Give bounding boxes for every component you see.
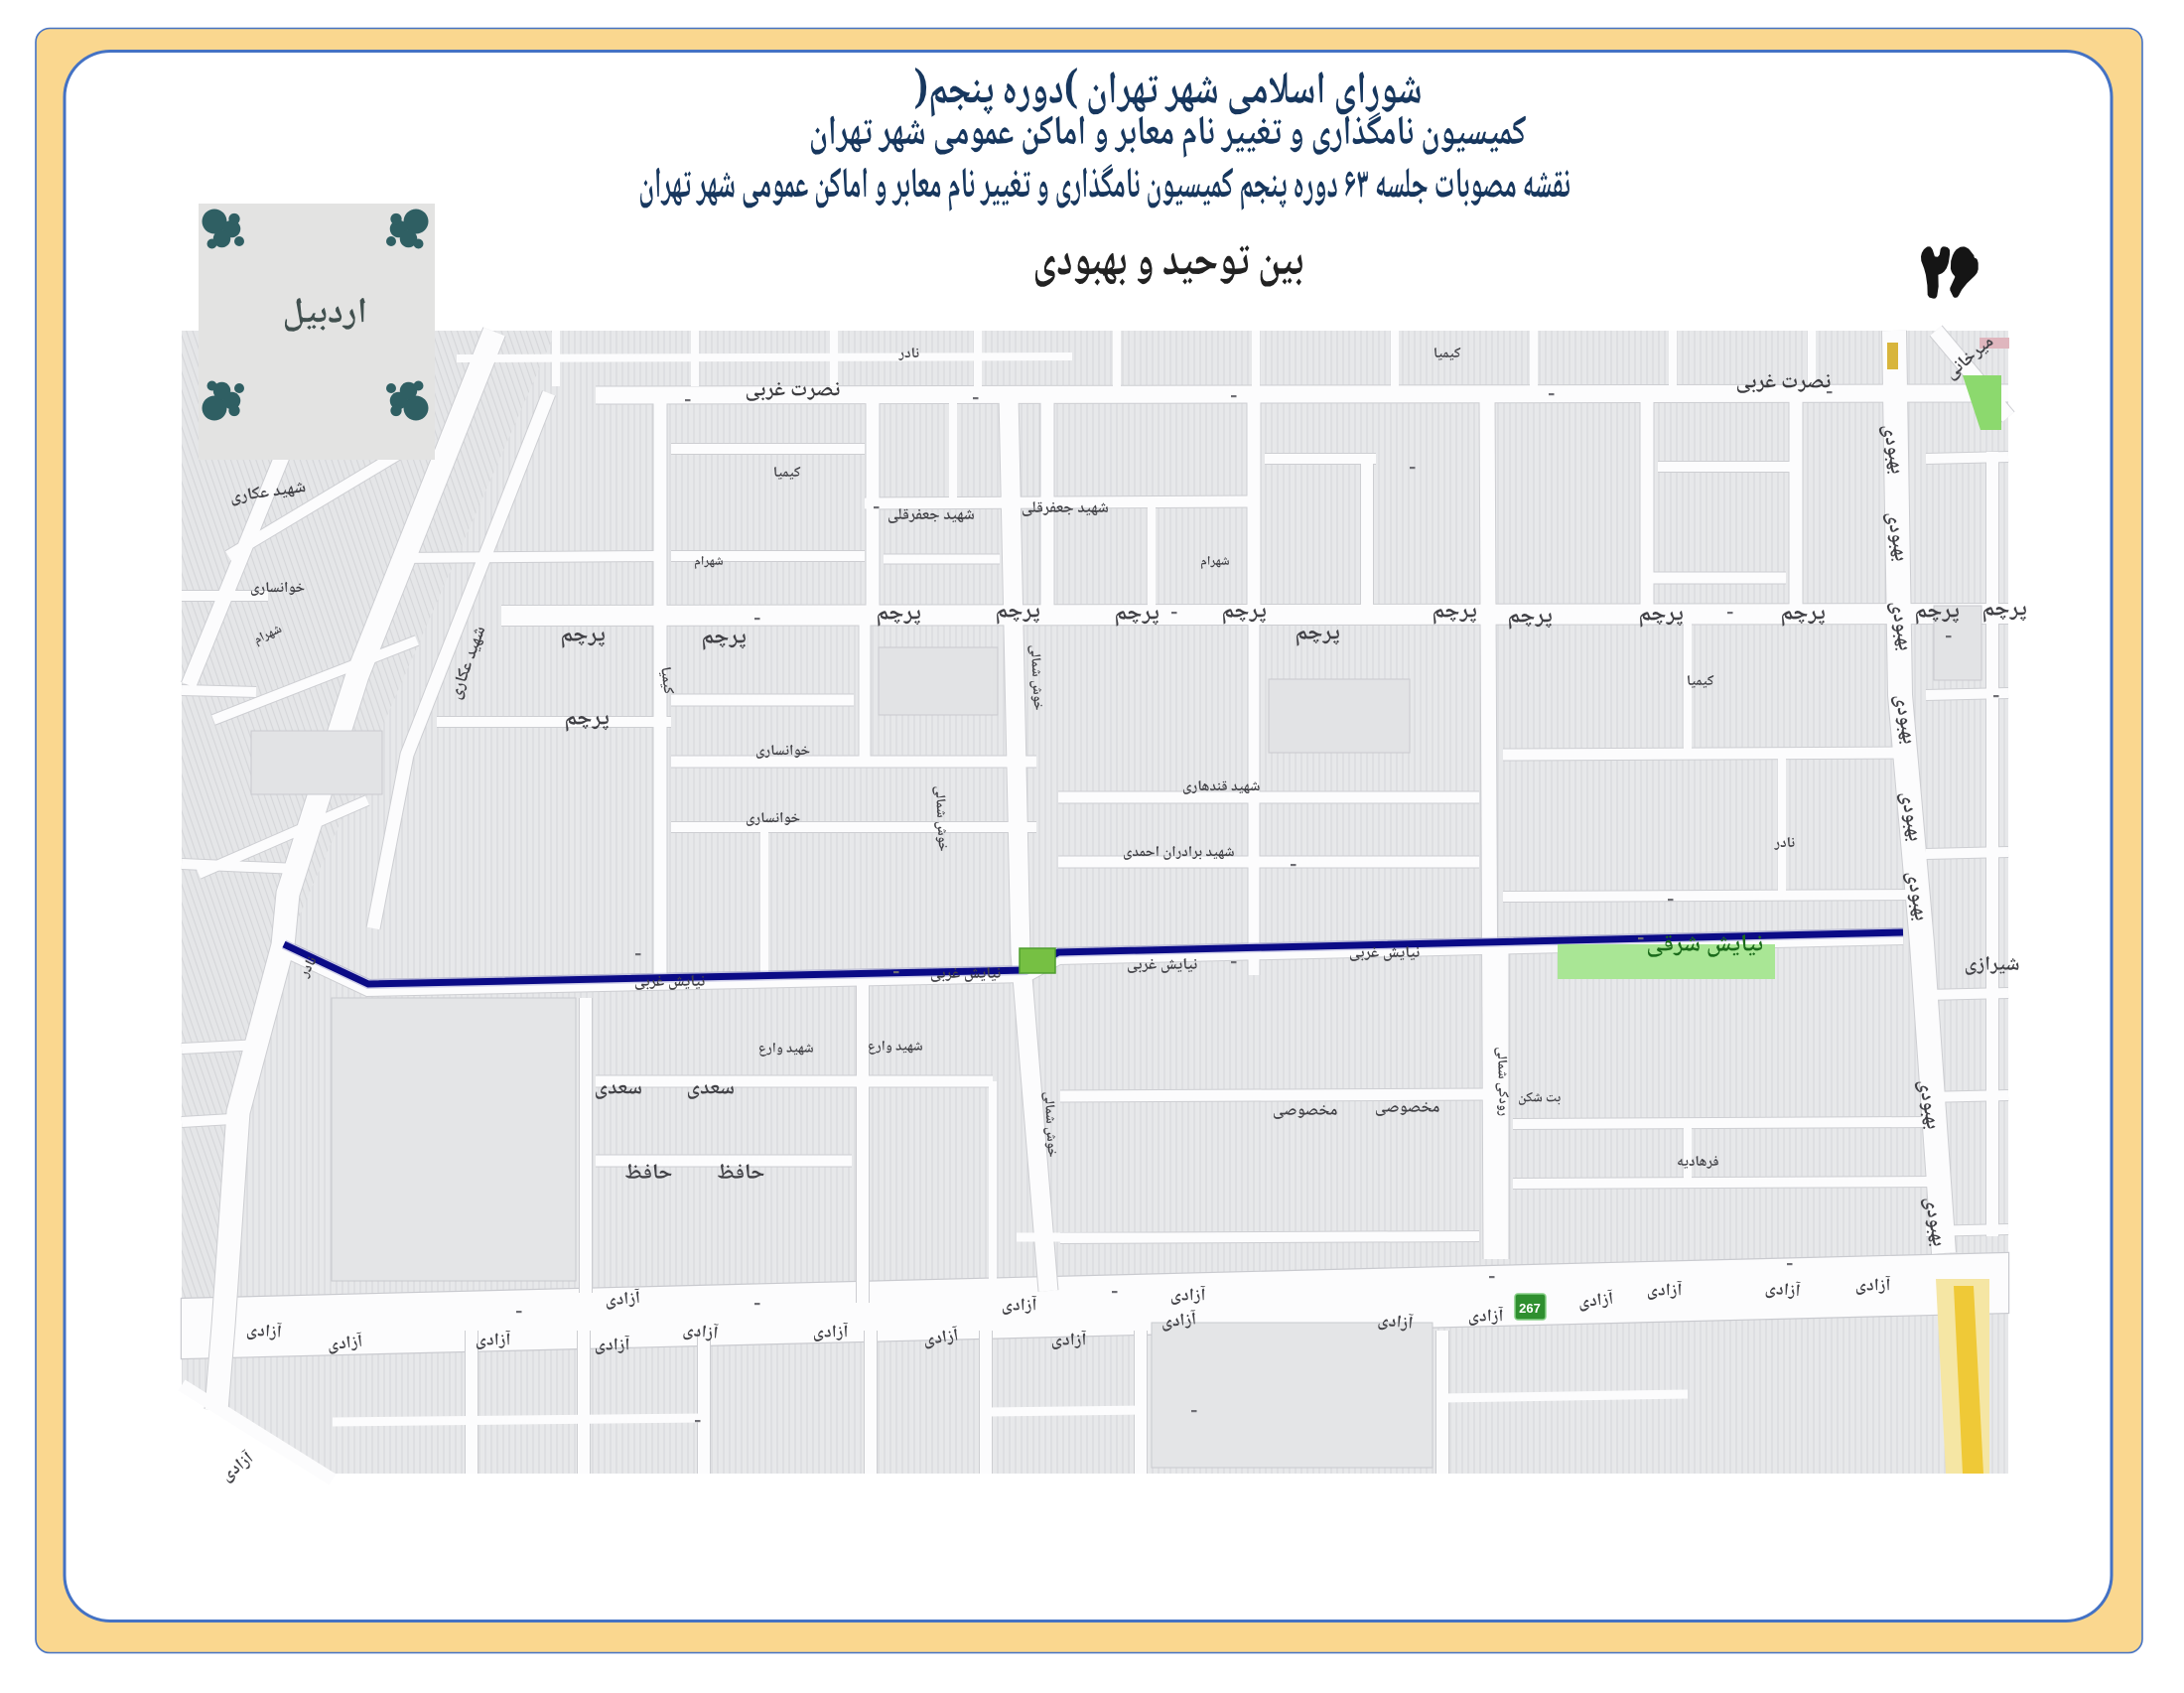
svg-text:267: 267 [1519, 1301, 1541, 1316]
